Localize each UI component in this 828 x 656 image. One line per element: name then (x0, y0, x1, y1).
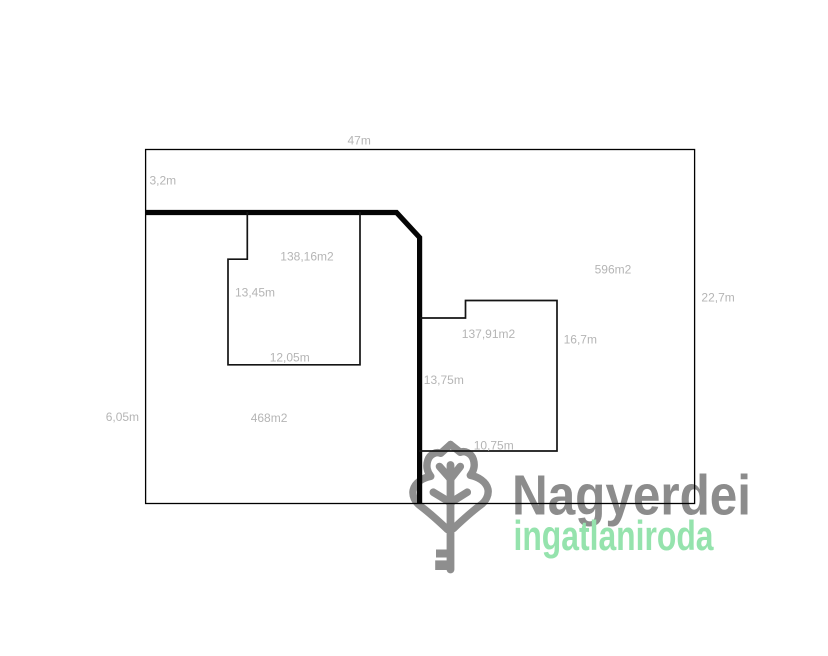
svg-text:13,45m: 13,45m (235, 285, 275, 299)
svg-text:596m2: 596m2 (595, 263, 632, 277)
svg-text:6,05m: 6,05m (106, 410, 139, 424)
svg-text:ingatlaniroda: ingatlaniroda (514, 512, 715, 559)
svg-text:3,2m: 3,2m (150, 173, 177, 187)
svg-text:16,7m: 16,7m (564, 332, 597, 346)
svg-text:10,75m: 10,75m (474, 439, 514, 453)
svg-text:468m2: 468m2 (251, 411, 288, 425)
svg-text:137,91m2: 137,91m2 (462, 327, 516, 341)
svg-text:47m: 47m (348, 133, 371, 147)
svg-text:138,16m2: 138,16m2 (280, 249, 334, 263)
svg-text:12,05m: 12,05m (270, 351, 310, 365)
svg-text:22,7m: 22,7m (701, 291, 734, 305)
svg-text:13,75m: 13,75m (424, 373, 464, 387)
